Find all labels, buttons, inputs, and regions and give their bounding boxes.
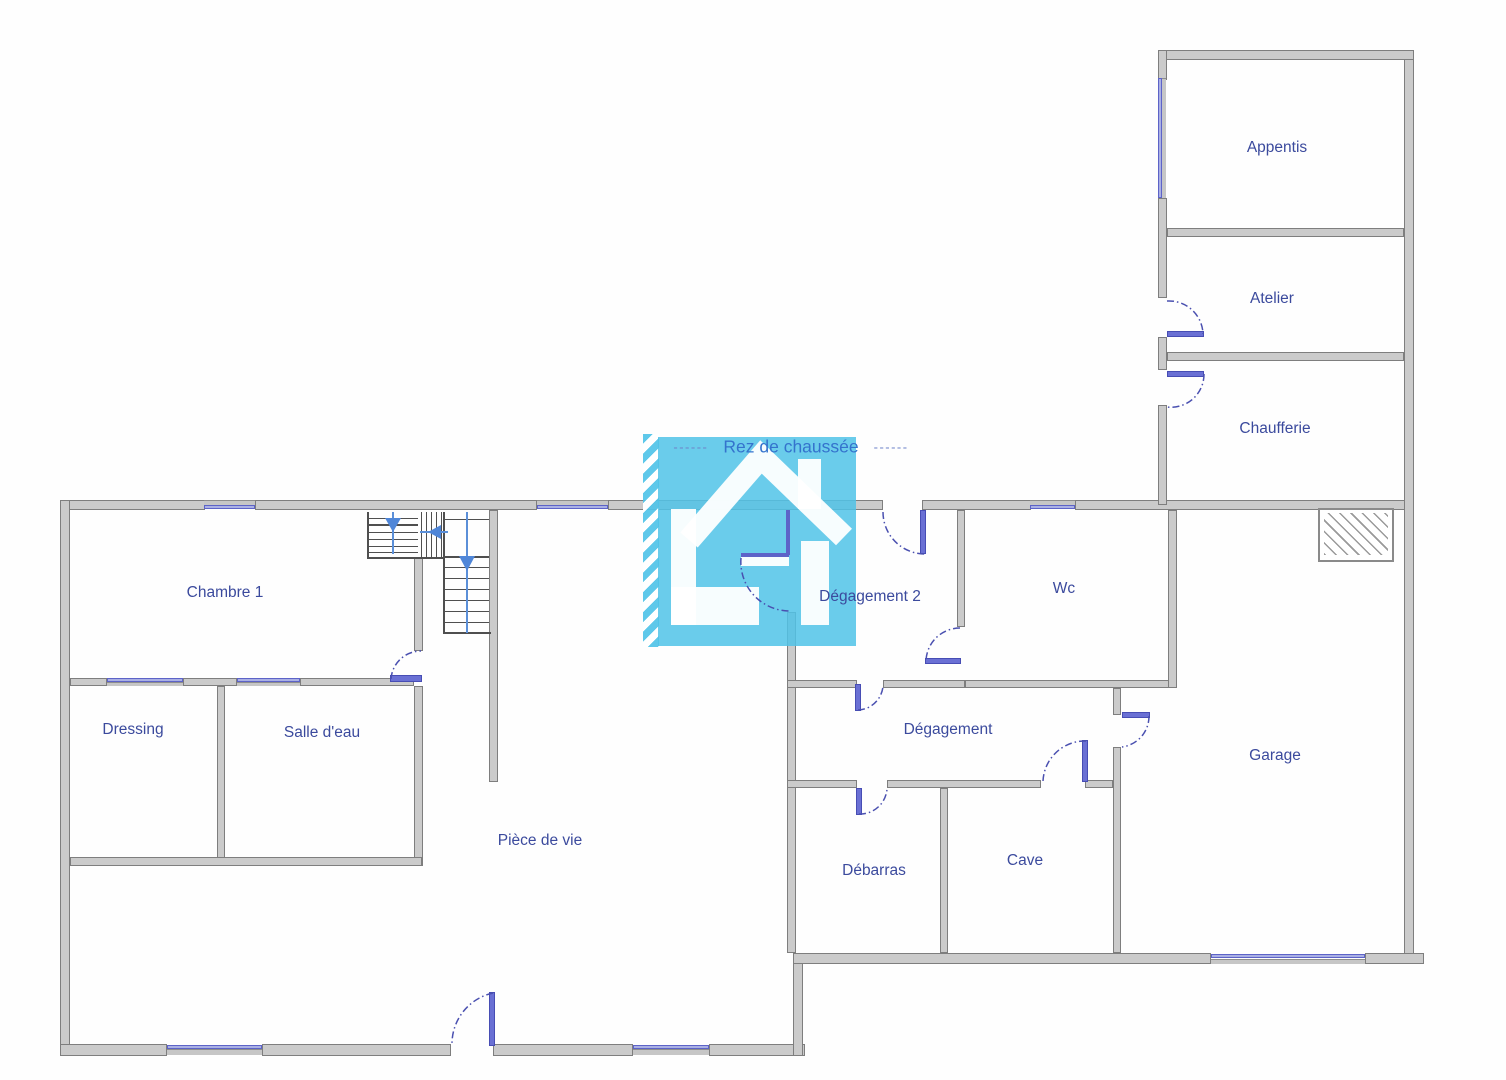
floor-title: ------ Rez de chaussée ------ [673, 437, 908, 458]
room-label-degagement2: Dégagement 2 [819, 588, 921, 606]
room-label-cave: Cave [1007, 852, 1043, 870]
room-label-debarras: Débarras [842, 862, 906, 880]
room-label-appentis: Appentis [1247, 139, 1307, 157]
room-label-wc: Wc [1053, 580, 1075, 598]
door-swing-arcs [0, 0, 1506, 1080]
room-label-piece-de-vie: Pièce de vie [498, 832, 582, 850]
room-label-chambre1: Chambre 1 [187, 584, 264, 602]
room-label-garage: Garage [1249, 747, 1301, 765]
title-dashes-right: ------ [874, 440, 909, 455]
room-label-degagement: Dégagement [904, 721, 993, 739]
room-label-dressing: Dressing [102, 721, 163, 739]
room-label-salle-deau: Salle d'eau [284, 724, 360, 742]
title-dashes-left: ------ [673, 440, 708, 455]
interior-glazing-side [786, 510, 790, 555]
floor-title-text: Rez de chaussée [723, 437, 858, 458]
floor-plan: ------ Rez de chaussée ------ [0, 0, 1506, 1080]
room-label-atelier: Atelier [1250, 290, 1294, 308]
interior-glazing [741, 553, 789, 557]
room-label-chaufferie: Chaufferie [1239, 420, 1310, 438]
